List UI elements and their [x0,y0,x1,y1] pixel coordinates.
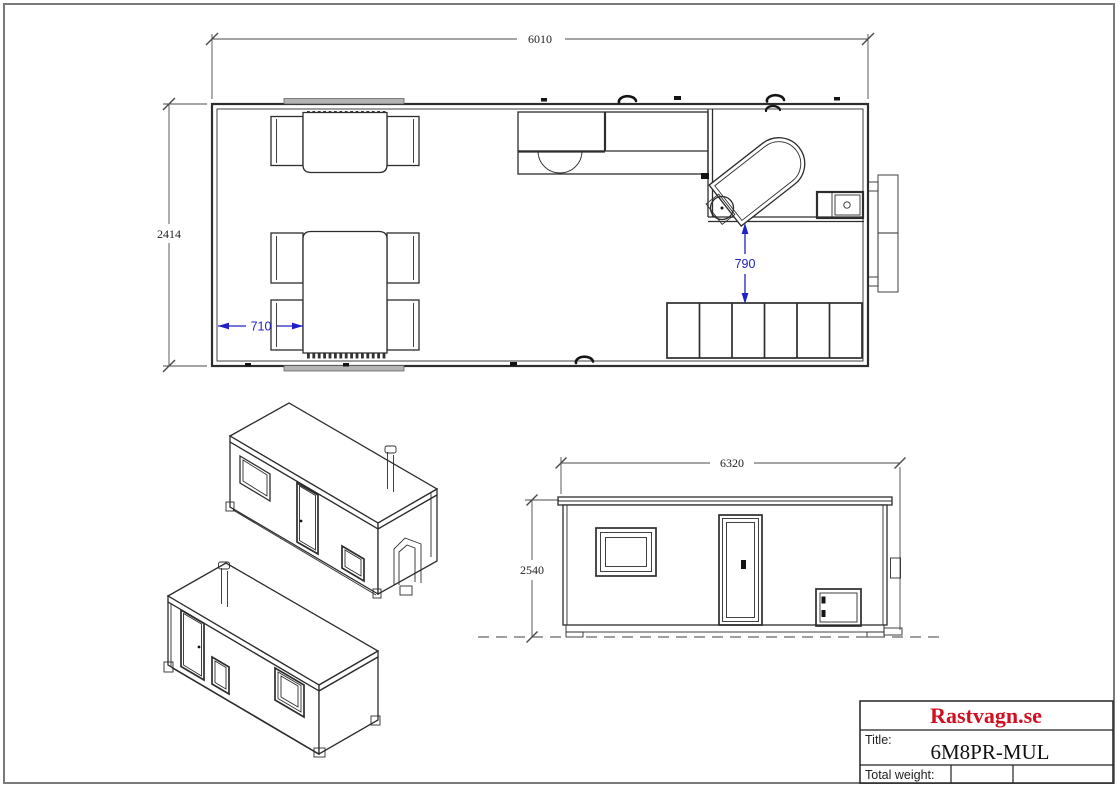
entry-steps-plan [868,175,898,292]
elevation-view: 6320 2540 [478,456,941,643]
table-bottom [271,232,419,354]
elevation-height-dim-text: 2540 [520,563,544,577]
plan-window-top [284,99,404,105]
plan-length-dim-text: 6010 [528,32,552,46]
brand-logo: Rastvagn.se [930,703,1042,728]
title-block: Rastvagn.se Title: 6M8PR-MUL Total weigh… [860,701,1113,783]
plan-width-dimension: 2414 [157,98,207,372]
toilet [698,127,815,234]
title-label: Title: [865,733,892,747]
table-clearance-dimension: 710 [218,320,303,334]
title-value: 6M8PR-MUL [930,740,1049,764]
wc-clearance-dim-text: 790 [735,257,756,271]
door-hinge-mark [701,173,709,179]
drawing-sheet: 6010 2414 710 790 [0,0,1118,787]
iso-view-bottom [164,562,380,757]
floor-plan: 6010 2414 710 790 [157,32,898,372]
weight-label: Total weight: [865,768,934,782]
iso-view-top [226,403,437,598]
table-top [271,113,419,173]
elevation-length-dim-text: 6320 [720,456,744,470]
sink-bowl [538,151,582,173]
wc-clearance-dimension: 790 [735,223,756,304]
door-handle [741,560,746,569]
elevation-body [563,505,887,625]
table-clearance-dim-text: 710 [251,320,272,334]
kitchen-counter [518,112,708,174]
elevation-length-dimension: 6320 [556,456,906,494]
wash-basin [817,192,863,218]
locker-bench [667,303,862,358]
elevation-height-dimension: 2540 [520,495,559,643]
toilet-room [698,109,864,235]
plan-width-dim-text: 2414 [157,227,181,241]
plan-length-dimension: 6010 [206,32,874,99]
